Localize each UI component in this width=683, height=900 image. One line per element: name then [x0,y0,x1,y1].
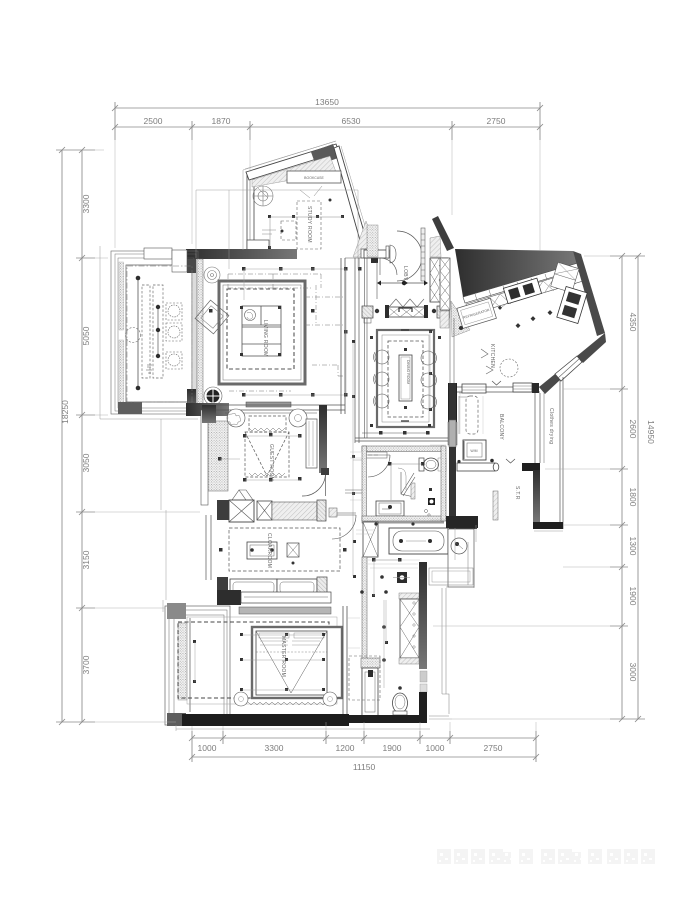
svg-text:5050: 5050 [81,326,91,345]
svg-text:BOOKCASE: BOOKCASE [304,176,324,180]
svg-text:1900: 1900 [628,587,638,606]
svg-text:MASTER ROOM: MASTER ROOM [280,636,286,677]
svg-text:DINING ROOM: DINING ROOM [406,360,410,384]
svg-text:LOBY: LOBY [402,266,408,281]
svg-text:1000: 1000 [198,743,217,753]
svg-text:3050: 3050 [81,453,91,472]
svg-text:3300: 3300 [265,743,284,753]
svg-text:4350: 4350 [628,313,638,332]
svg-text:CLOAKROOM: CLOAKROOM [266,533,272,568]
svg-text:LIVING ROOM: LIVING ROOM [262,320,268,357]
svg-text:BALCONY: BALCONY [498,414,504,440]
svg-text:1800: 1800 [628,488,638,507]
svg-text:3150: 3150 [81,550,91,569]
svg-text:W/M: W/M [470,449,477,453]
svg-text:2600: 2600 [628,420,638,439]
svg-text:Clothes drying: Clothes drying [548,408,554,444]
svg-text:18250: 18250 [60,400,70,424]
svg-text:11150: 11150 [353,762,376,772]
svg-text:3300: 3300 [81,194,91,213]
svg-text:2500: 2500 [144,116,163,126]
svg-text:14950: 14950 [646,420,656,444]
svg-text:13650: 13650 [315,97,339,107]
svg-text:1900: 1900 [383,743,402,753]
svg-text:1000: 1000 [426,743,445,753]
svg-text:6530: 6530 [342,116,361,126]
svg-text:1870: 1870 [212,116,231,126]
svg-text:3700: 3700 [81,655,91,674]
svg-text:2750: 2750 [484,743,503,753]
svg-text:S.T.R: S.T.R [514,486,520,500]
svg-text:2750: 2750 [487,116,506,126]
svg-text:3000: 3000 [628,663,638,682]
svg-text:STUDY ROOM: STUDY ROOM [306,206,312,243]
svg-text:GUEST ROOM: GUEST ROOM [268,444,274,481]
svg-text:1300: 1300 [628,537,638,556]
svg-text:1200: 1200 [336,743,355,753]
svg-text:KITCHEN: KITCHEN [489,344,495,368]
